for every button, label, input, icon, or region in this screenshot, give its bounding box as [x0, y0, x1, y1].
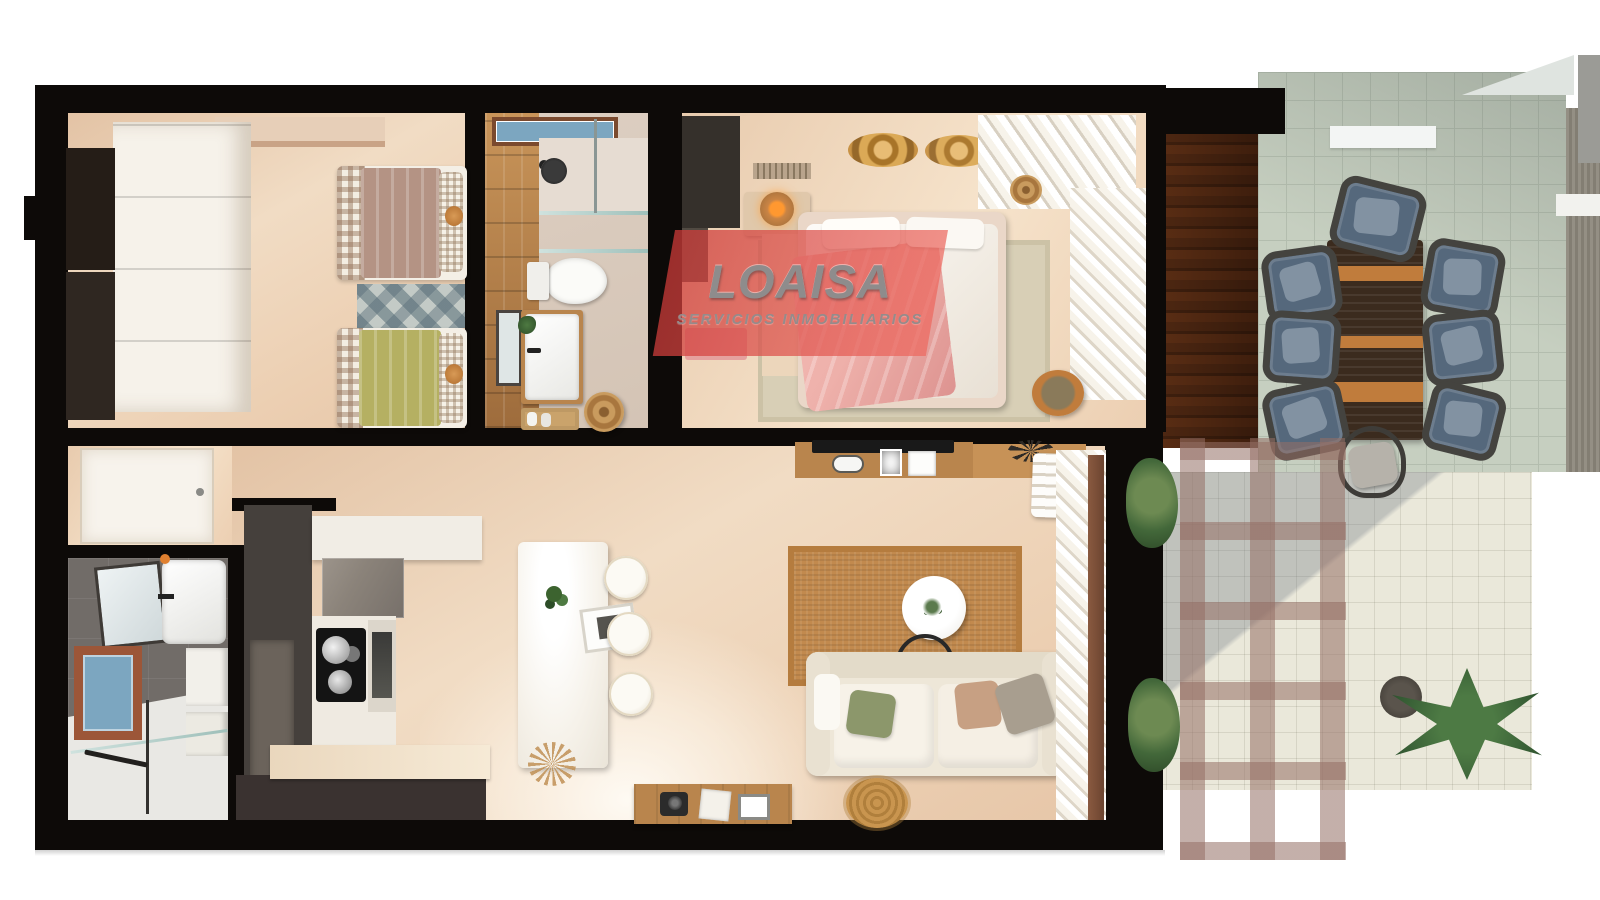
terrace-chair-right-2 — [1420, 308, 1505, 388]
terrace-chair-left-2 — [1262, 309, 1343, 386]
watermark: LOAISA SERVICIOS INMOBILIARIOS — [650, 258, 950, 328]
single-bed-2 — [337, 328, 467, 428]
round-jute-mat — [846, 778, 908, 828]
master-pouf — [1032, 370, 1084, 416]
bathroom2-sink — [162, 560, 226, 644]
bathroom2-cabinet-1 — [186, 648, 228, 706]
wall-bottom — [35, 820, 1163, 850]
kitchen-upper-cabinets — [322, 558, 404, 618]
wardrobe — [113, 122, 251, 412]
shower-head — [541, 158, 567, 184]
bed1-blanket — [361, 168, 441, 278]
table-plank-2 — [1327, 336, 1423, 348]
plan-drop-shadow — [35, 850, 1165, 856]
master-curtain-right — [1070, 188, 1146, 400]
slider-door-frame — [1088, 455, 1104, 820]
oven-door — [372, 632, 392, 698]
terrace-shrub-1 — [1126, 458, 1178, 548]
kitchen-counter-top — [312, 516, 482, 560]
watermark-tagline: SERVICIOS INMOBILIARIOS — [650, 311, 950, 328]
toilet-tank — [527, 262, 549, 300]
terrace-chair-right-1 — [1418, 236, 1508, 322]
bathroom2-soap — [160, 554, 170, 564]
terrace-wall-cap — [1163, 88, 1285, 134]
shelf-photo-2 — [908, 451, 936, 476]
wall-right-upper — [1146, 85, 1166, 432]
entry-door — [80, 448, 214, 544]
coffee-table-plant — [922, 598, 942, 616]
wall-top — [35, 85, 1163, 113]
wall-left — [35, 85, 68, 850]
bar-stool-2 — [607, 612, 651, 656]
pot-1 — [322, 636, 350, 664]
kitchen-peninsula-front — [236, 775, 486, 820]
wicker-pendant-lamp — [1010, 175, 1042, 205]
closet-dark-lower — [66, 272, 115, 420]
wall-twin-bath1 — [465, 85, 485, 446]
closet-dark-upper — [66, 148, 115, 270]
sideboard-frame — [738, 794, 770, 820]
pot-2 — [328, 670, 352, 694]
shower-glass-door — [539, 249, 648, 253]
bed1-teddy — [445, 206, 463, 226]
terrace-shrub-2 — [1128, 678, 1180, 772]
sofa-back — [806, 652, 1066, 678]
bathroom2-window — [74, 646, 142, 740]
sofa-pillow-white — [814, 674, 840, 730]
shower-glass-pole — [594, 119, 597, 213]
bed2-blanket — [359, 330, 441, 426]
toilet — [545, 258, 607, 304]
vanity-faucet — [527, 348, 541, 353]
apartment-floorplan-render: LOAISA SERVICIOS INMOBILIARIOS — [0, 0, 1600, 900]
pergola-grid — [1180, 438, 1346, 860]
shelf-tray — [832, 455, 864, 473]
bar-stool-3 — [609, 672, 653, 716]
headboard-slats — [753, 163, 811, 179]
wall-hall-bath2 — [35, 545, 232, 558]
sideboard-cards — [699, 789, 732, 822]
wall-medallion-1 — [848, 133, 918, 167]
corner-block — [1578, 55, 1600, 163]
single-bed-1 — [337, 166, 467, 280]
entry-door-handle — [196, 488, 204, 496]
parapet-cap-white — [1330, 126, 1436, 148]
camera-lens — [668, 796, 682, 810]
shower-pole-2 — [146, 700, 149, 814]
wood-slat-screen — [1162, 133, 1258, 448]
bedside-lamp — [760, 192, 794, 226]
bed2-teddy — [445, 364, 463, 384]
master-closet-dark — [682, 116, 740, 228]
dried-plant — [528, 742, 576, 786]
wicker-stool — [584, 392, 624, 432]
bathroom2-mirror — [94, 561, 168, 649]
sofa-pillow-green — [845, 689, 897, 739]
table-plank-1 — [1327, 266, 1423, 281]
twin-room-rug — [357, 284, 465, 328]
parapet-gap-white — [1556, 194, 1600, 216]
bench-bottles — [527, 412, 537, 426]
bar-stool-1 — [604, 556, 648, 600]
wall-left-nub — [24, 196, 36, 240]
bathroom2-faucet — [158, 594, 174, 599]
kitchen-peninsula-top — [270, 745, 490, 779]
watermark-brand: LOAISA — [650, 258, 950, 305]
island-plant — [546, 586, 562, 602]
kitchen-island — [518, 542, 608, 768]
sofa — [806, 652, 1066, 776]
hanging-chair-cushion — [1347, 440, 1400, 489]
shelf-photo-1 — [880, 449, 902, 476]
